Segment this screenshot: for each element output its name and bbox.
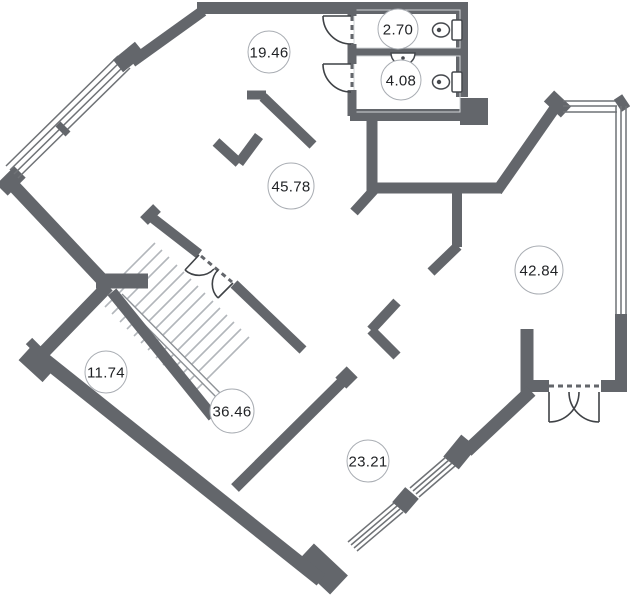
room-area-value: 19.46 xyxy=(249,44,288,61)
wall-end-block xyxy=(341,372,352,383)
toilet-icon xyxy=(433,20,463,40)
toilet-icon xyxy=(433,72,463,92)
sw-wall xyxy=(41,357,321,580)
corner-wall-fragment xyxy=(371,302,397,330)
entrance-double-door-icon xyxy=(549,392,599,422)
stair-ne-wall xyxy=(150,216,199,254)
room-label-4.08: 4.08 xyxy=(381,60,421,100)
room-labels: 19.462.704.0845.7842.8411.7436.4623.21 xyxy=(85,9,563,482)
hall-divider-wall xyxy=(234,284,303,350)
se-window-band-2 xyxy=(348,503,403,551)
nw-diagonal-wall xyxy=(132,11,203,62)
floor-plan-canvas: 19.462.704.0845.7842.8411.7436.4623.21 xyxy=(0,0,630,597)
se-window-band-1 xyxy=(410,457,455,497)
room-19-se-wall xyxy=(263,97,313,145)
room-label-11.74: 11.74 xyxy=(85,351,127,393)
corner-block xyxy=(618,97,626,109)
wc-door-arc-icon xyxy=(323,16,351,44)
se-diagonal-wall xyxy=(467,391,531,451)
room-label-36.46: 36.46 xyxy=(210,389,254,433)
room-area-value: 2.70 xyxy=(383,21,413,38)
room-area-value: 4.08 xyxy=(386,72,416,89)
room-label-19.46: 19.46 xyxy=(248,31,290,73)
ne-diagonal-wall xyxy=(497,105,557,191)
nw-window-band xyxy=(6,56,130,178)
room-area-value: 45.78 xyxy=(271,178,310,195)
room-label-23.21: 23.21 xyxy=(347,440,389,482)
room-area-value: 36.46 xyxy=(212,403,251,420)
room-area-value: 42.84 xyxy=(519,262,558,279)
window-mullion xyxy=(58,124,68,134)
room-area-value: 23.21 xyxy=(348,453,387,470)
corner-block xyxy=(451,441,469,463)
west-notch-lower-wall xyxy=(42,286,108,354)
top-right-window-band xyxy=(563,101,617,112)
room-label-42.84: 42.84 xyxy=(515,246,563,294)
room-divider-wall xyxy=(235,380,344,488)
room-label-2.70: 2.70 xyxy=(378,9,418,49)
stair-door-opening xyxy=(201,256,232,282)
right-window-band xyxy=(616,106,626,318)
floor-plan-svg: 19.462.704.0845.7842.8411.7436.4623.21 xyxy=(0,0,630,597)
corridor-corner-wall xyxy=(239,136,259,163)
corner-wall-fragment xyxy=(371,330,397,356)
window-mullion-block xyxy=(399,493,412,508)
wc-door-arc-icon xyxy=(323,64,351,92)
hall-right-divider-diag xyxy=(431,246,458,272)
corridor-stub-wall xyxy=(354,190,374,212)
room-label-45.78: 45.78 xyxy=(268,163,314,209)
stair-sw-wall xyxy=(112,292,213,417)
room-area-value: 11.74 xyxy=(87,364,125,381)
west-notch-upper-wall xyxy=(10,182,108,286)
